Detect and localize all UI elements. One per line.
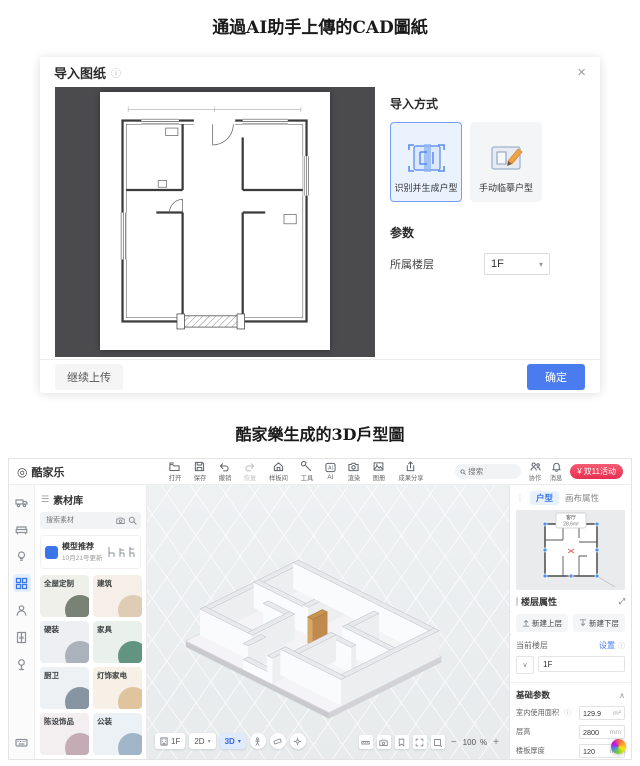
category-decor[interactable]: 陈设饰品 bbox=[40, 713, 89, 755]
sofa-icon bbox=[15, 523, 28, 536]
category-lighting[interactable]: 灯饰家电 bbox=[93, 667, 142, 709]
app-logo[interactable]: ◎ 酷家乐 bbox=[17, 464, 137, 480]
divider bbox=[516, 597, 518, 606]
undo-icon bbox=[219, 461, 230, 472]
promo-button[interactable]: ¥ 双11活动 bbox=[570, 464, 623, 479]
caret-down-icon: ▾ bbox=[208, 738, 211, 745]
redo-button[interactable]: 恢复 bbox=[243, 461, 257, 483]
thumb-area-label: 28.6m² bbox=[563, 522, 579, 528]
floor-select-value: 1F bbox=[491, 258, 504, 270]
svg-text:AI: AI bbox=[328, 466, 333, 472]
method-trace-card[interactable]: 手动临摹户型 bbox=[470, 122, 542, 202]
info-icon: ⓘ bbox=[564, 708, 571, 718]
camera-icon bbox=[348, 461, 359, 472]
new-lower-floor-button[interactable]: 新建下层 bbox=[573, 614, 625, 632]
right-tabs: ⋮ 户型 画布属性 bbox=[516, 489, 625, 506]
zoom-level: 100 bbox=[463, 738, 476, 747]
strip-item-furnish[interactable] bbox=[13, 520, 31, 538]
model-3d-svg bbox=[147, 485, 509, 759]
promo-label: 双11活动 bbox=[584, 466, 616, 477]
mode-2d-button[interactable]: 2D ▾ bbox=[189, 733, 215, 749]
truck-icon bbox=[15, 496, 28, 509]
image-icon bbox=[373, 461, 384, 472]
strip-item-landscape[interactable] bbox=[13, 655, 31, 673]
showroom-button[interactable]: 样板间 bbox=[268, 461, 289, 483]
divider bbox=[510, 682, 631, 683]
category-kitchen-bath[interactable]: 厨卫 bbox=[40, 667, 89, 709]
wall-height-field[interactable]: 2800 mm bbox=[579, 725, 625, 739]
dots-icon[interactable]: ⋮ bbox=[516, 493, 524, 502]
main-toolbar: 打开 保存 撤销 恢复 样板间 工具 AI bbox=[168, 461, 425, 483]
thumb-room-label: 客厅 bbox=[565, 514, 575, 521]
material-search[interactable] bbox=[40, 512, 141, 529]
strip-item-cabinet[interactable] bbox=[13, 628, 31, 646]
crop-icon bbox=[433, 738, 442, 747]
param-row-area: 室内使用面积ⓘ 129.9 m² bbox=[516, 706, 625, 720]
recognize-floorplan-icon bbox=[404, 141, 448, 175]
method-recognize-label: 识别并生成户型 bbox=[394, 181, 457, 194]
export-icon bbox=[405, 461, 416, 472]
top-search-input[interactable] bbox=[466, 466, 516, 477]
continue-upload-button[interactable]: 继续上传 bbox=[55, 364, 123, 390]
promo-yen-icon: ¥ bbox=[577, 467, 581, 476]
bulb-icon bbox=[15, 550, 28, 563]
view-controls-left: 1F 2D ▾ 3D ▾ bbox=[155, 733, 306, 749]
ruler-tool-button[interactable] bbox=[359, 735, 373, 749]
walk-icon bbox=[253, 737, 262, 746]
confirm-button[interactable]: 确定 bbox=[527, 364, 585, 390]
recommend-subtitle: 10月21号更新 bbox=[62, 552, 102, 562]
person-icon bbox=[15, 604, 28, 617]
camera-search-icon[interactable] bbox=[116, 516, 125, 525]
dialog-header: 导入图纸 ⓘ × bbox=[40, 57, 600, 87]
method-recognize-card[interactable]: 识别并生成户型 bbox=[390, 122, 462, 202]
material-panel: ☰ 素材库 模型推荐 10月21号更新 bbox=[35, 485, 147, 759]
panel-title: 素材库 bbox=[53, 492, 83, 507]
recommend-title: 模型推荐 bbox=[62, 542, 102, 552]
cabinet-icon bbox=[15, 631, 28, 644]
keyboard-icon bbox=[15, 736, 28, 749]
category-commercial[interactable]: 公装 bbox=[93, 713, 142, 755]
properties-panel: ‹ ⋮ 户型 画布属性 bbox=[509, 485, 631, 759]
floorplan-cad-svg bbox=[100, 92, 330, 350]
mode-3d-button[interactable]: 3D ▾ bbox=[220, 733, 246, 749]
caret-down-icon: ▾ bbox=[238, 738, 241, 745]
search-icon[interactable] bbox=[128, 516, 137, 525]
building-icon bbox=[160, 737, 168, 746]
undo-button[interactable]: 撤销 bbox=[218, 461, 232, 483]
page-title-cad: 通過AI助手上傳的CAD圖紙 bbox=[0, 13, 640, 38]
floor-props-header: 楼层属性 ⤢ bbox=[516, 595, 625, 608]
view-settings-button[interactable] bbox=[290, 733, 306, 749]
floor-up-icon bbox=[522, 619, 530, 627]
tools-button[interactable]: 工具 bbox=[300, 461, 314, 483]
walkthrough-button[interactable] bbox=[250, 733, 266, 749]
top-search[interactable] bbox=[455, 464, 521, 479]
param-row-height: 层高 2800 mm bbox=[516, 725, 625, 739]
mini-floorplan-svg: 客厅 28.6m² bbox=[521, 512, 621, 588]
floor-row: 所属楼层 1F ▾ bbox=[390, 253, 550, 275]
floor-down-icon bbox=[579, 619, 587, 627]
save-button[interactable]: 保存 bbox=[193, 461, 207, 483]
menu-icon[interactable]: ☰ bbox=[41, 494, 49, 505]
collab-button[interactable]: 协作 bbox=[528, 461, 542, 483]
category-grid: 全屋定制 建筑 硬装 家具 厨卫 灯饰家电 陈设饰品 公装 bbox=[40, 575, 141, 755]
zoom-in-button[interactable]: + bbox=[491, 737, 501, 748]
category-architecture[interactable]: 建筑 bbox=[93, 575, 142, 617]
people-icon bbox=[530, 461, 541, 472]
cad-drawing bbox=[100, 92, 330, 350]
redo-icon bbox=[244, 461, 255, 472]
dialog-right-column: 导入方式 识别并生成户型 bbox=[390, 87, 550, 275]
theme-fab-button[interactable] bbox=[611, 739, 626, 754]
ruler-icon bbox=[273, 737, 282, 746]
basic-params-header: 基础参数 ∧ bbox=[516, 689, 625, 701]
info-icon: ⓘ bbox=[618, 641, 625, 651]
current-floor-field[interactable]: 1F bbox=[538, 656, 625, 672]
dialog-footer: 继续上传 确定 bbox=[40, 359, 600, 393]
share-button[interactable]: 成果分享 bbox=[397, 461, 425, 483]
left-icon-strip bbox=[9, 485, 35, 759]
fullscreen-icon bbox=[415, 738, 424, 747]
chairs-icon bbox=[106, 545, 136, 559]
bookmark-icon bbox=[397, 738, 406, 747]
save-icon bbox=[194, 461, 205, 472]
strip-item-library-active[interactable] bbox=[13, 574, 31, 592]
tab-floorplan[interactable]: 户型 bbox=[530, 491, 559, 505]
collapse-icon[interactable]: ∧ bbox=[619, 691, 625, 700]
album-button[interactable]: 图册 bbox=[372, 461, 386, 483]
snapshot-button[interactable] bbox=[377, 735, 391, 749]
measure-button[interactable] bbox=[270, 733, 286, 749]
zoom-out-button[interactable]: − bbox=[449, 737, 459, 748]
save-view-button[interactable] bbox=[395, 735, 409, 749]
trace-pencil-icon bbox=[484, 141, 528, 175]
recommend-icon bbox=[45, 546, 58, 559]
view-controls-right: − 100 % + bbox=[359, 735, 501, 749]
folder-icon bbox=[169, 461, 180, 472]
zoom-unit: % bbox=[480, 738, 487, 747]
floor-value-row: ∨ 1F bbox=[516, 656, 625, 674]
logo-icon: ◎ bbox=[17, 465, 27, 479]
method-trace-label: 手动临摹户型 bbox=[479, 181, 533, 194]
dialog-title: 导入图纸 bbox=[54, 63, 106, 82]
category-hard-furnish[interactable]: 硬装 bbox=[40, 621, 89, 663]
panel-collapse-handle[interactable]: ‹ bbox=[509, 611, 511, 635]
import-dialog: 导入图纸 ⓘ × bbox=[40, 57, 600, 393]
expand-icon[interactable]: ⤢ bbox=[619, 597, 625, 607]
panel-header: ☰ 素材库 bbox=[41, 492, 141, 507]
logo-text: 酷家乐 bbox=[31, 464, 64, 480]
fullscreen-button[interactable] bbox=[413, 735, 427, 749]
material-search-input[interactable] bbox=[44, 516, 113, 525]
floor-buttons: 新建上层 新建下层 bbox=[516, 614, 625, 632]
area-field[interactable]: 129.9 m² bbox=[579, 706, 625, 720]
new-upper-floor-button[interactable]: 新建上层 bbox=[516, 614, 568, 632]
category-custom[interactable]: 全屋定制 bbox=[40, 575, 89, 617]
floor-label: 所属楼层 bbox=[390, 256, 484, 272]
house-icon bbox=[273, 461, 284, 472]
message-button[interactable]: 消息 bbox=[549, 461, 563, 483]
strip-item-avatar[interactable] bbox=[13, 601, 31, 619]
ruler-icon bbox=[361, 738, 370, 747]
plant-icon bbox=[15, 658, 28, 671]
recommend-banner[interactable]: 模型推荐 10月21号更新 bbox=[40, 535, 141, 569]
import-method-label: 导入方式 bbox=[390, 95, 550, 112]
current-floor-row: 当前楼层 设置 ⓘ bbox=[516, 640, 625, 651]
floor-setting-link[interactable]: 设置 bbox=[599, 640, 615, 651]
strip-item-shortcuts[interactable] bbox=[13, 733, 31, 751]
app-topbar: ◎ 酷家乐 打开 保存 撤销 恢复 样板间 bbox=[9, 459, 631, 485]
strip-item-lighting[interactable] bbox=[13, 547, 31, 565]
method-cards: 识别并生成户型 手动临摹户型 bbox=[390, 122, 550, 202]
floorplan-thumbnail[interactable]: 客厅 28.6m² bbox=[516, 510, 625, 590]
tab-canvas-props[interactable]: 画布属性 bbox=[565, 492, 599, 504]
info-icon: ⓘ bbox=[111, 65, 121, 80]
close-icon[interactable]: × bbox=[577, 65, 586, 80]
strip-item-vehicle[interactable] bbox=[13, 493, 31, 511]
grid-icon bbox=[15, 577, 28, 590]
floor-select[interactable]: 1F ▾ bbox=[484, 253, 550, 275]
gear-icon bbox=[293, 737, 302, 746]
capture-region-button[interactable] bbox=[431, 735, 445, 749]
param-row-slab: 楼板厚度 120 mm bbox=[516, 744, 625, 758]
topbar-right: 协作 消息 ¥ 双11活动 bbox=[455, 461, 623, 483]
open-button[interactable]: 打开 bbox=[168, 461, 182, 483]
ai-button[interactable]: AI AI bbox=[325, 462, 336, 481]
floor-indicator[interactable]: 1F bbox=[155, 733, 185, 749]
category-furniture[interactable]: 家具 bbox=[93, 621, 142, 663]
chevron-down-icon[interactable]: ∨ bbox=[516, 656, 534, 674]
camera-icon bbox=[379, 738, 388, 747]
viewport-3d[interactable]: 1F 2D ▾ 3D ▾ − bbox=[147, 485, 509, 759]
params-label: 参数 bbox=[390, 224, 550, 241]
page: 通過AI助手上傳的CAD圖紙 导入图纸 ⓘ × bbox=[0, 0, 640, 766]
kujiale-app-window: ◎ 酷家乐 打开 保存 撤销 恢复 样板间 bbox=[8, 458, 632, 760]
render-button[interactable]: 渲染 bbox=[347, 461, 361, 483]
caret-down-icon: ▾ bbox=[539, 260, 543, 269]
bell-icon bbox=[551, 461, 562, 472]
wrench-icon bbox=[301, 461, 312, 472]
cad-preview-area bbox=[55, 87, 375, 357]
page-title-3d: 酷家樂生成的3D戶型圖 bbox=[0, 421, 640, 445]
ai-icon: AI bbox=[325, 462, 336, 473]
